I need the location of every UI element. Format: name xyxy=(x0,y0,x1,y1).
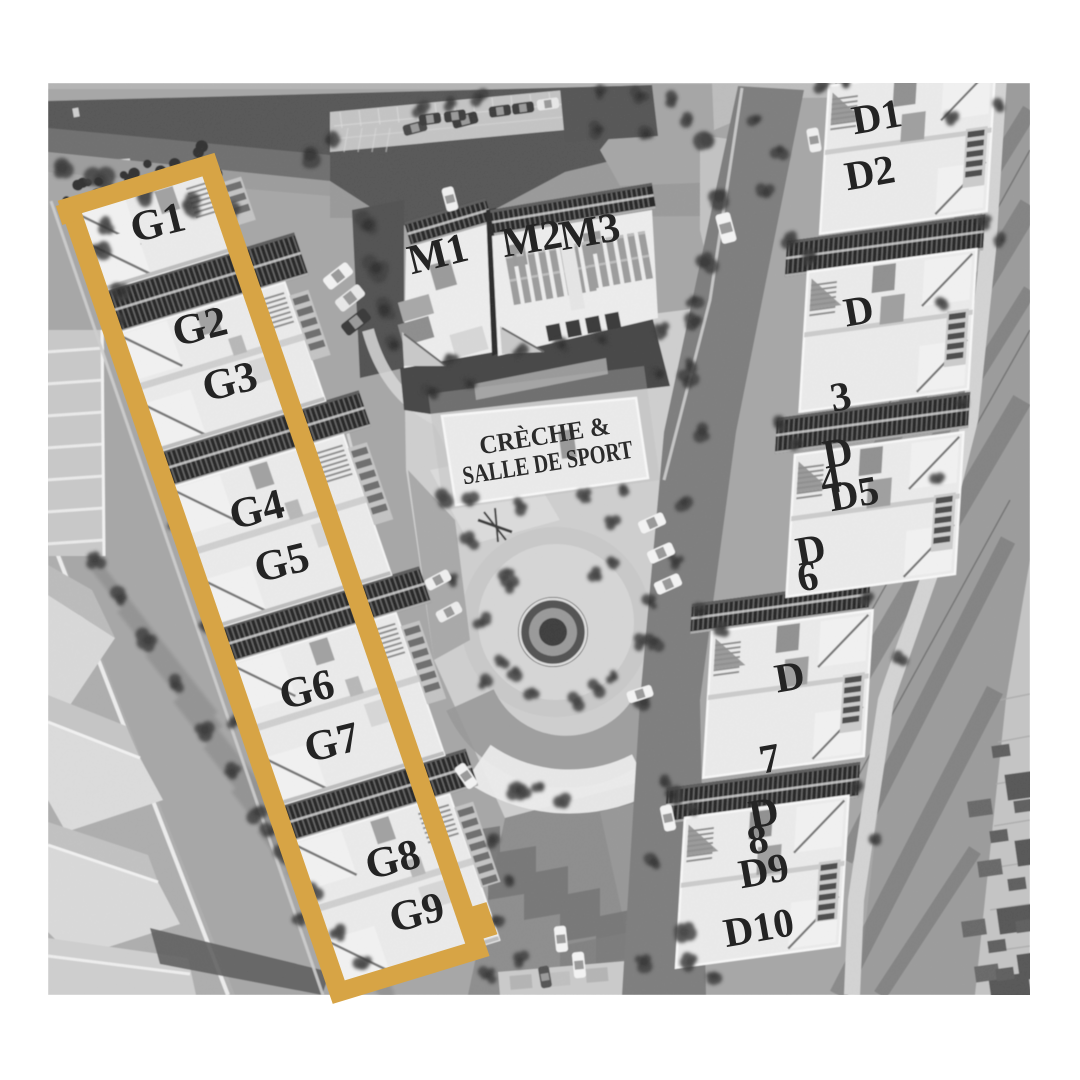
svg-text:D2: D2 xyxy=(841,145,898,199)
svg-text:D5: D5 xyxy=(825,466,882,520)
svg-text:D1: D1 xyxy=(848,89,905,143)
svg-text:D9: D9 xyxy=(735,843,792,897)
